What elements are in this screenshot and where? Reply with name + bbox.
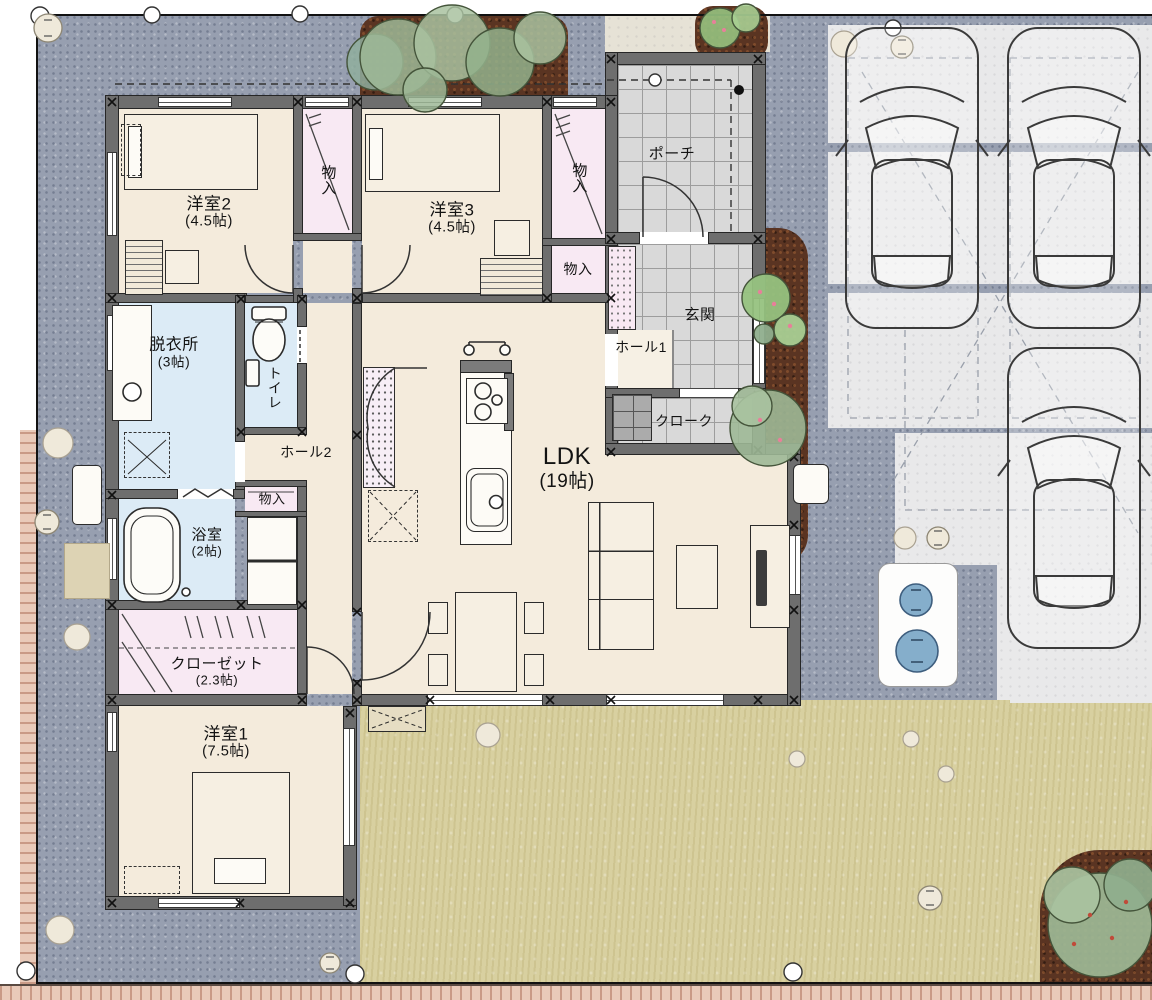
terrace-step bbox=[368, 706, 426, 732]
desk bbox=[165, 250, 199, 284]
boundary-line-south bbox=[36, 982, 1152, 984]
fridge-space bbox=[368, 490, 418, 542]
wall bbox=[105, 694, 307, 706]
window bbox=[158, 898, 240, 908]
corridor-mid bbox=[307, 303, 352, 435]
label-hall1: ホール1 bbox=[615, 340, 667, 356]
futon-space bbox=[124, 866, 180, 894]
window bbox=[305, 97, 349, 107]
wall bbox=[297, 295, 307, 327]
shoe-cabinet bbox=[608, 246, 636, 330]
wall bbox=[105, 489, 178, 499]
washer-space bbox=[124, 432, 170, 478]
chair bbox=[524, 602, 544, 634]
chair bbox=[524, 654, 544, 686]
linen-cabinet bbox=[247, 517, 297, 605]
wall bbox=[605, 232, 640, 244]
window bbox=[408, 97, 482, 107]
wall bbox=[233, 489, 245, 499]
wall bbox=[235, 295, 245, 442]
wall bbox=[352, 680, 362, 706]
parking-slab-top bbox=[828, 25, 1152, 428]
ac-outdoor-unit bbox=[793, 464, 829, 504]
opening-bath-door bbox=[178, 489, 233, 499]
lawn bbox=[360, 700, 1010, 984]
wall bbox=[293, 95, 303, 241]
boundary-line-north bbox=[36, 14, 1152, 16]
label-ldk: LDK(19帖) bbox=[539, 444, 594, 492]
cloak-shelf bbox=[612, 394, 652, 441]
opening-toilet-door bbox=[297, 327, 307, 363]
pantry-shelf bbox=[363, 367, 395, 488]
window bbox=[553, 97, 597, 107]
window bbox=[753, 298, 765, 384]
wall bbox=[605, 443, 752, 455]
desk bbox=[494, 220, 530, 256]
window bbox=[107, 712, 117, 752]
wall bbox=[235, 427, 307, 435]
vanity-counter bbox=[112, 305, 152, 421]
water-heater-unit bbox=[72, 465, 102, 525]
sofa bbox=[588, 502, 654, 650]
parking-joint-strip bbox=[828, 284, 1152, 293]
stove bbox=[466, 378, 508, 424]
window bbox=[158, 97, 232, 107]
parking-slab-low bbox=[997, 565, 1152, 703]
planting-bed bbox=[1040, 850, 1152, 984]
wall bbox=[352, 95, 362, 241]
wall bbox=[352, 303, 362, 612]
wall bbox=[605, 52, 766, 65]
wall bbox=[738, 388, 766, 398]
window-ldk-terrace bbox=[427, 694, 543, 706]
corridor-low bbox=[307, 482, 352, 694]
boundary-line-west bbox=[36, 14, 38, 984]
opening-porch-door bbox=[640, 232, 708, 244]
label-hall2: ホール2 bbox=[280, 445, 332, 461]
window bbox=[107, 152, 117, 236]
label-genkan: 玄関 bbox=[684, 308, 715, 325]
wall bbox=[297, 363, 307, 435]
label-toilet: トイレ bbox=[266, 366, 282, 410]
bed bbox=[365, 114, 500, 192]
label-yoshitsu1: 洋室1(7.5帖) bbox=[202, 724, 250, 759]
wall bbox=[293, 233, 362, 241]
label-bath: 浴室(2帖) bbox=[191, 527, 222, 558]
window bbox=[789, 535, 801, 595]
wall bbox=[357, 694, 801, 706]
window bbox=[343, 728, 355, 846]
window-ldk-terrace bbox=[606, 694, 724, 706]
label-porch: ポーチ bbox=[649, 147, 696, 164]
dresser bbox=[125, 240, 163, 295]
label-yoshitsu2: 洋室2(4.5帖) bbox=[185, 194, 233, 229]
tank-pad bbox=[878, 563, 958, 687]
label-mono-d: 物入 bbox=[258, 493, 285, 508]
sink bbox=[466, 468, 508, 532]
opening-datsuijo bbox=[235, 442, 245, 482]
wall bbox=[708, 232, 766, 244]
equipment-pad bbox=[64, 543, 110, 599]
wardrobe-outline bbox=[121, 124, 141, 176]
label-cloak: クローク bbox=[655, 414, 713, 430]
pillow bbox=[369, 128, 383, 180]
dining-table bbox=[455, 592, 517, 692]
chair bbox=[428, 654, 448, 686]
bed bbox=[124, 114, 258, 190]
fence-west bbox=[20, 430, 37, 984]
label-yoshitsu3: 洋室3(4.5帖) bbox=[428, 200, 476, 235]
corridor-top bbox=[303, 233, 352, 293]
pillow bbox=[214, 858, 266, 884]
label-mono-b: 物入 bbox=[570, 163, 587, 194]
parking-joint-strip bbox=[828, 143, 1152, 152]
label-datsuijo: 脱衣所(3帖) bbox=[149, 336, 199, 369]
label-mono-a: 物入 bbox=[319, 165, 336, 196]
chair bbox=[428, 602, 448, 634]
wall bbox=[235, 480, 307, 487]
wall bbox=[352, 288, 362, 303]
label-mono-c: 物入 bbox=[564, 262, 593, 278]
floor-plan: 洋室2(4.5帖) 物入 洋室3(4.5帖) 物入 物入 ポーチ 玄関 ホール1… bbox=[0, 0, 1152, 1000]
opening-cloak-slider bbox=[680, 388, 738, 398]
tv bbox=[756, 550, 767, 606]
dresser bbox=[480, 258, 543, 296]
fence-south bbox=[0, 984, 1152, 1000]
parking-slab-mid bbox=[895, 433, 1152, 565]
wall bbox=[542, 95, 552, 303]
kitchen-counter-cap bbox=[460, 360, 512, 373]
coffee-table bbox=[676, 545, 718, 609]
label-closet: クローゼット(2.3帖) bbox=[170, 656, 263, 687]
